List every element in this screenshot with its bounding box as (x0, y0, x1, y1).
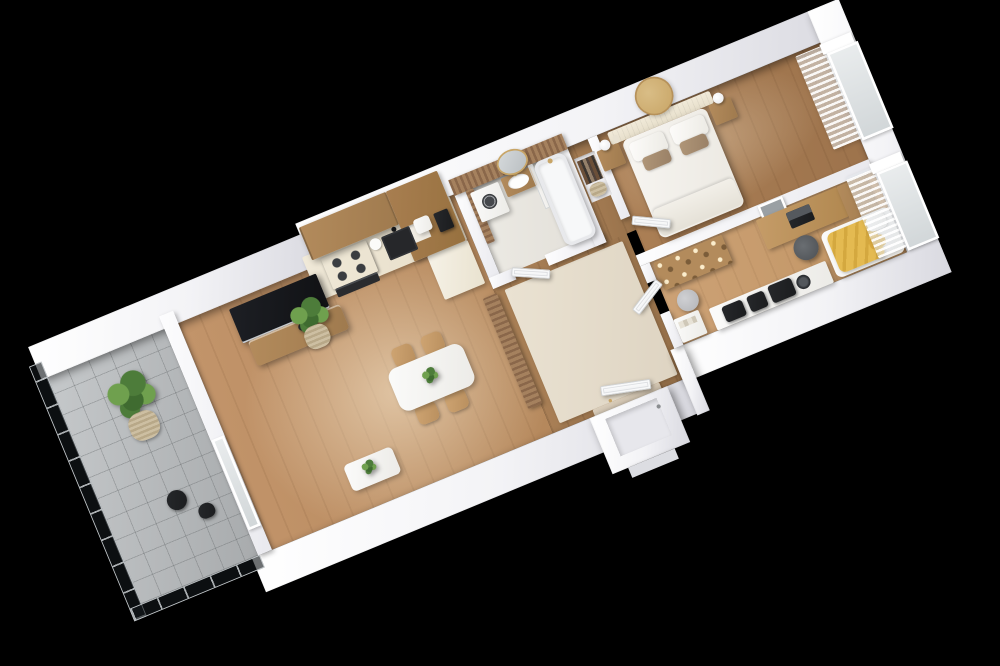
apartment (31, 0, 978, 666)
apartment-plan (17, 0, 978, 666)
render-stage (0, 0, 1000, 666)
